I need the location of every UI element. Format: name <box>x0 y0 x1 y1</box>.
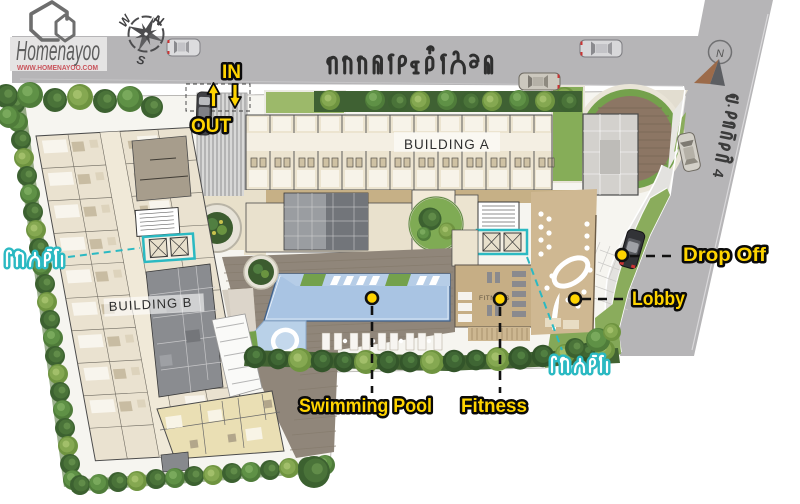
svg-text:Fitness: Fitness <box>461 396 527 417</box>
svg-text:WWW.HOMENAYOO.COM: WWW.HOMENAYOO.COM <box>17 63 98 72</box>
svg-text:Homenayoo: Homenayoo <box>16 35 100 66</box>
svg-text:Drop Off: Drop Off <box>683 245 767 266</box>
svg-text:BUILDING A: BUILDING A <box>404 137 490 152</box>
svg-text:Swimming Pool: Swimming Pool <box>299 396 432 417</box>
svg-text:N: N <box>716 48 724 60</box>
svg-text:OUT: OUT <box>191 116 232 137</box>
svg-text:Lobby: Lobby <box>632 289 685 310</box>
svg-text:IN: IN <box>222 62 241 83</box>
